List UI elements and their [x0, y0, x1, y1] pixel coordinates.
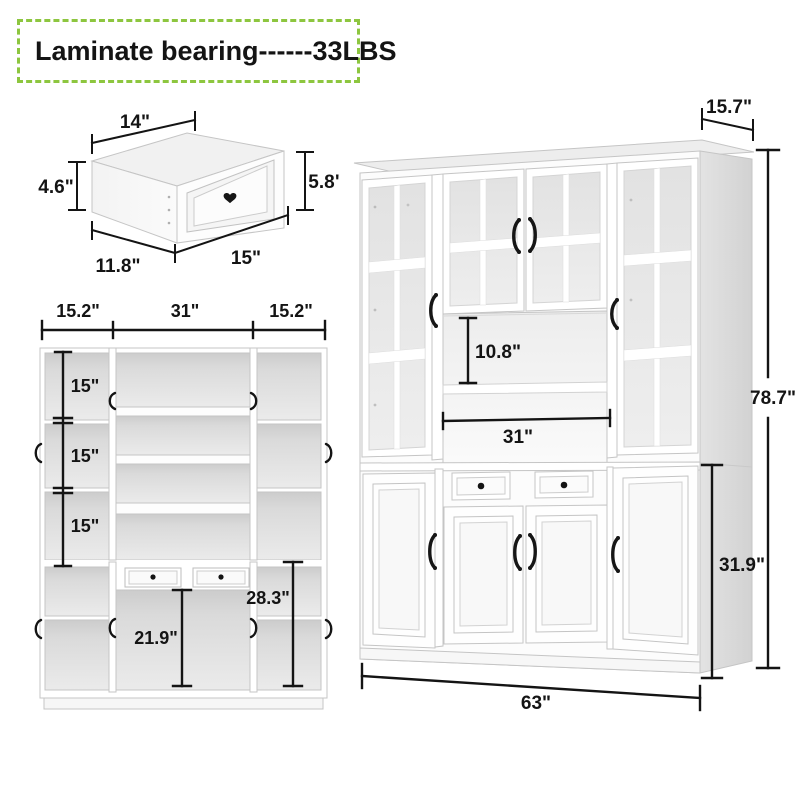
drawer-top-width-label: 14": [120, 112, 150, 133]
drawer-knob: [218, 574, 223, 579]
shelf-height-1-label: 15": [71, 376, 100, 396]
stile: [250, 348, 257, 560]
glass-door-middle-right: [526, 164, 607, 311]
shelf-cell: [45, 567, 109, 616]
handle-mount: [433, 533, 437, 537]
handle-mount: [616, 536, 620, 540]
front-view-diagram: 15.2" 31" 15.2" 15" 15" 15" 21.9" 28.3": [25, 300, 345, 720]
lower-height-label: 31.9": [719, 555, 765, 576]
screw-dot: [168, 209, 171, 212]
handle-mount: [528, 249, 532, 253]
handle-mount: [528, 533, 532, 537]
glass-door-left: [362, 175, 432, 457]
panel-inner: [379, 489, 419, 630]
handle-mount: [615, 326, 619, 330]
handle-mount: [616, 569, 620, 573]
shelf-pin: [374, 309, 377, 312]
shelf-front: [116, 407, 250, 416]
cabinet-base: [44, 698, 323, 709]
total-width-label: 63": [521, 693, 551, 714]
top-depth-label: 15.7": [706, 97, 752, 118]
shelf-pin: [374, 206, 377, 209]
handle-mount: [528, 217, 532, 221]
capacity-badge: Laminate bearing------33LBS: [17, 19, 360, 83]
shelf-cell: [116, 464, 250, 503]
shelf-pin: [407, 204, 410, 207]
stile: [432, 174, 443, 460]
handle-mount: [615, 298, 619, 302]
stile: [435, 469, 443, 647]
drawer-side-height-label: 4.6": [38, 177, 73, 198]
lower-right-height-label: 28.3": [246, 588, 290, 608]
drawer-knob: [561, 482, 568, 489]
shelf-cell: [257, 353, 321, 420]
shelf-pin: [374, 404, 377, 407]
drawer-knob: [150, 574, 155, 579]
screw-dot: [168, 196, 171, 199]
shelf-cell: [257, 620, 321, 690]
drawer-dimension-diagram: 14" 4.6" 5.8" 11.8" 15": [30, 100, 340, 285]
panel-inner: [629, 482, 682, 637]
drawer-front-height-label: 5.8": [308, 172, 340, 193]
perspective-view-diagram: 15.7" 78.7" 10.8" 31" 31.9" 63": [350, 95, 800, 720]
panel-inner: [460, 522, 507, 626]
shelf-front: [116, 503, 250, 514]
glass-door-right: [617, 158, 698, 455]
shelf-height-2-label: 15": [71, 446, 100, 466]
mullion: [654, 168, 660, 446]
mullion: [394, 185, 400, 449]
shelf-cell: [45, 620, 109, 690]
handle-mount: [518, 534, 522, 538]
stile: [109, 348, 116, 560]
cabinet-side-face: [700, 151, 752, 673]
shelf-cell: [116, 353, 250, 407]
product-dimension-sheet: Laminate bearing------33LBS 14": [0, 0, 800, 800]
top-width-left-label: 15.2": [56, 301, 100, 321]
top-width-right-label: 15.2": [269, 301, 313, 321]
shelf-cell: [257, 492, 321, 560]
cabinet-3d: [354, 140, 754, 673]
drawer-front-width-label: 15": [231, 248, 261, 269]
opening-width-label: 31": [503, 427, 533, 448]
shelf-cell: [116, 514, 250, 560]
capacity-badge-text: Laminate bearing------33LBS: [35, 36, 397, 67]
shelf-cell: [116, 416, 250, 455]
shelf-height-3-label: 15": [71, 516, 100, 536]
shelf-front: [116, 455, 250, 464]
top-width-middle-label: 31": [171, 301, 200, 321]
handle-mount: [528, 566, 532, 570]
handle-mount: [434, 324, 438, 328]
total-height-label: 78.7": [750, 388, 796, 409]
shelf-pin: [630, 199, 633, 202]
handle-mount: [434, 293, 438, 297]
glass-door-middle-left: [443, 169, 524, 314]
handle-mount: [517, 250, 521, 254]
handle-mount: [433, 566, 437, 570]
lower-middle-height-label: 21.9": [134, 628, 178, 648]
screw-dot: [168, 222, 171, 225]
drawer-depth-label: 11.8": [96, 256, 141, 277]
opening-height-label: 10.8": [475, 342, 521, 363]
panel-inner: [542, 521, 591, 625]
handle-mount: [517, 218, 521, 222]
handle-mount: [518, 567, 522, 571]
shelf-pin: [630, 299, 633, 302]
drawer-knob: [478, 483, 485, 490]
shelf-cell: [257, 424, 321, 488]
